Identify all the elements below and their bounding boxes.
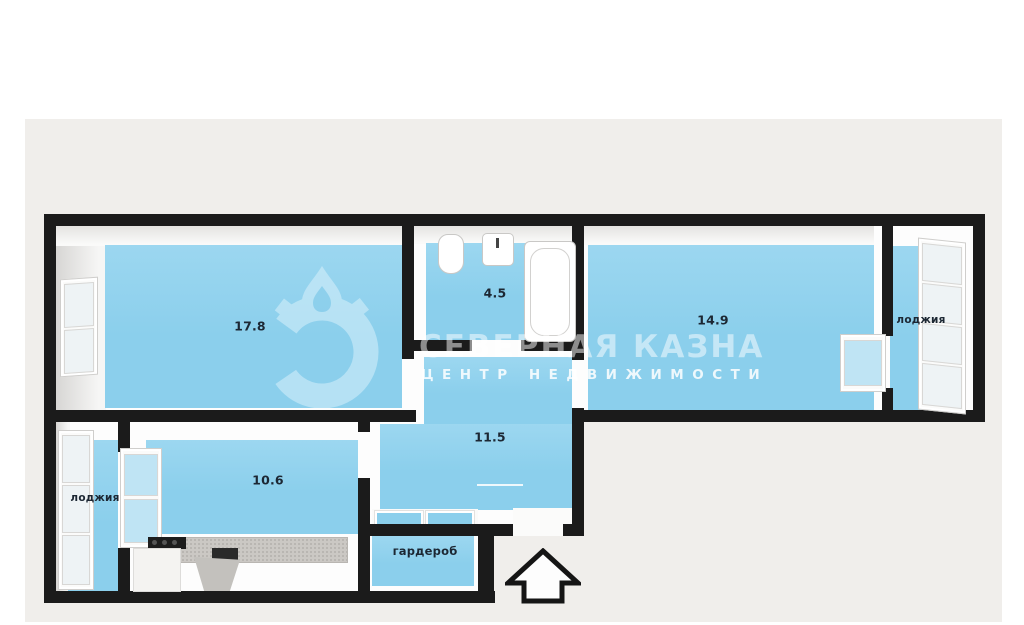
horseshoe-flame-logo-icon xyxy=(256,260,388,408)
bedroom-floor xyxy=(588,245,874,410)
wall-exterior-bottom xyxy=(44,591,495,603)
area-label-hall: 11.5 xyxy=(474,430,506,445)
wall-bedroom-loggia-upper xyxy=(882,226,893,336)
bathtub-icon xyxy=(524,241,576,342)
wall-hall-right xyxy=(572,408,584,536)
wall-living-bathroom xyxy=(402,214,414,359)
toilet-icon xyxy=(438,234,464,274)
area-label-kitchen: 10.6 xyxy=(252,473,284,488)
wall-exterior-right xyxy=(973,214,985,422)
window-bedroom-loggia-block xyxy=(840,334,886,392)
wall-shading-living-top xyxy=(56,226,402,246)
wall-shading-bedroom-top xyxy=(584,226,874,245)
window-living-room xyxy=(60,277,98,378)
wall-exterior-top xyxy=(44,214,985,226)
wall-hall-bottom-right xyxy=(563,524,584,536)
window-kitchen-loggia-block xyxy=(120,448,162,548)
watermark-tagline-text: ЦЕНТР НЕДВИЖИМОСТИ xyxy=(421,367,768,383)
wall-exterior-left xyxy=(44,214,56,603)
wall-middle xyxy=(44,410,416,422)
wall-bedroom-bottom xyxy=(572,410,985,422)
wall-bedroom-loggia-lower xyxy=(882,388,893,422)
area-label-bedroom: 14.9 xyxy=(697,313,729,328)
wall-loggia-kitchen-lower xyxy=(118,548,130,591)
window-loggia-left-exterior xyxy=(58,430,94,590)
bathtub-basin xyxy=(530,248,570,336)
watermark-brand-text: СЕВЕРНАЯ КАЗНА xyxy=(419,329,764,365)
entrance-arrow-icon xyxy=(505,548,581,604)
sink-icon xyxy=(482,233,514,266)
window-loggia-right-exterior xyxy=(918,237,966,414)
faucet-icon xyxy=(496,238,499,248)
oven-icon xyxy=(212,548,238,560)
area-label-bathroom: 4.5 xyxy=(484,286,507,301)
room-label-loggia-right: лоджия xyxy=(896,314,945,326)
wall-hall-bottom-left xyxy=(368,524,513,536)
room-label-wardrobe: гардероб xyxy=(393,544,458,558)
room-label-loggia-left: лоджия xyxy=(70,492,119,504)
floorplan-canvas: 17.8 4.5 14.9 лоджия 11.5 10.6 лоджия га… xyxy=(0,0,1024,625)
hall-floor-marking xyxy=(477,484,523,486)
kitchen-cabinet xyxy=(133,548,181,592)
wall-kitchen-hall-cap xyxy=(358,422,370,432)
